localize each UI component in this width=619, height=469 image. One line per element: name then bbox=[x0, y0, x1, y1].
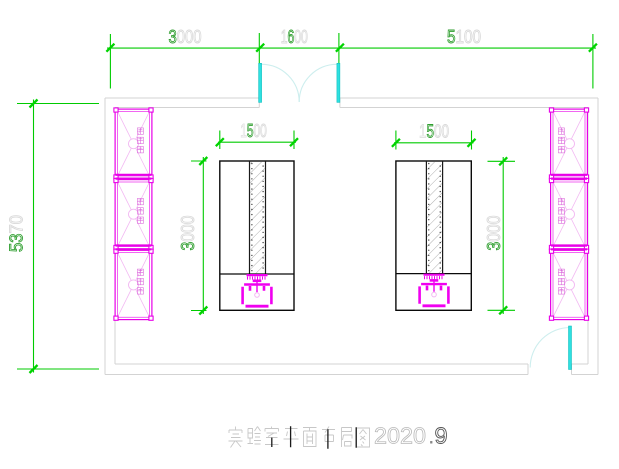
svg-text:9: 9 bbox=[435, 423, 448, 449]
svg-text:1500: 1500 bbox=[240, 121, 267, 141]
svg-text:5100: 5100 bbox=[447, 27, 481, 47]
svg-text:1600: 1600 bbox=[281, 27, 308, 47]
svg-text:3000: 3000 bbox=[169, 27, 202, 47]
svg-text:3000: 3000 bbox=[484, 216, 504, 251]
svg-text:2020: 2020 bbox=[374, 423, 426, 449]
svg-text:3000: 3000 bbox=[178, 216, 198, 251]
svg-text:5370: 5370 bbox=[7, 215, 27, 252]
svg-text:1500: 1500 bbox=[419, 122, 449, 142]
